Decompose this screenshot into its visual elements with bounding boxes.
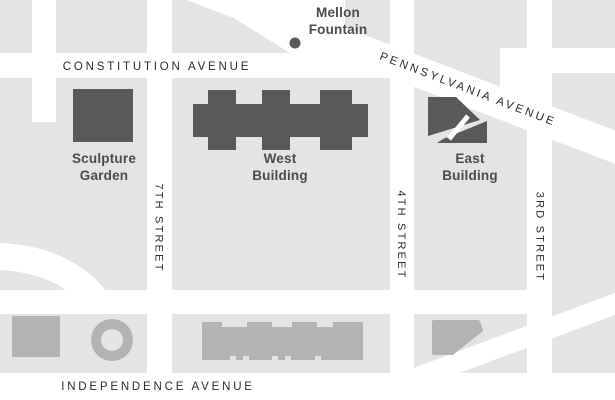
third-street-label: 3RD STREET [534, 192, 546, 282]
sculpture-garden-label-line2: Garden [80, 168, 128, 183]
city-block [552, 140, 615, 314]
city-block [552, 0, 615, 48]
square-building [12, 316, 60, 357]
city-block [56, 0, 147, 53]
independence-avenue-label: INDEPENDENCE AVENUE [61, 381, 255, 393]
west-building-label-line2: Building [252, 168, 308, 183]
fourth-street-label: 4TH STREET [395, 190, 407, 279]
sculpture-garden-label-line1: Sculpture [72, 151, 136, 166]
seventh-street-label: 7TH STREET [153, 183, 165, 272]
west-building-label-line1: West [264, 151, 297, 166]
mellon-fountain-label-line1: Mellon [316, 5, 360, 20]
south-mall-building [202, 322, 363, 360]
city-block [0, 0, 32, 53]
city-blocks [0, 0, 615, 373]
east-building-label-line2: Building [442, 168, 498, 183]
mellon-fountain-dot [290, 38, 301, 49]
constitution-avenue-label: CONSTITUTION AVENUE [63, 61, 251, 73]
map-canvas: CONSTITUTION AVENUE INDEPENDENCE AVENUE … [0, 0, 615, 400]
west-building-shape [193, 90, 368, 150]
mellon-fountain-label-line2: Fountain [309, 22, 368, 37]
sculpture-garden-building [73, 89, 133, 142]
nga-area-map: CONSTITUTION AVENUE INDEPENDENCE AVENUE … [0, 0, 615, 400]
east-building-label-line1: East [455, 151, 485, 166]
